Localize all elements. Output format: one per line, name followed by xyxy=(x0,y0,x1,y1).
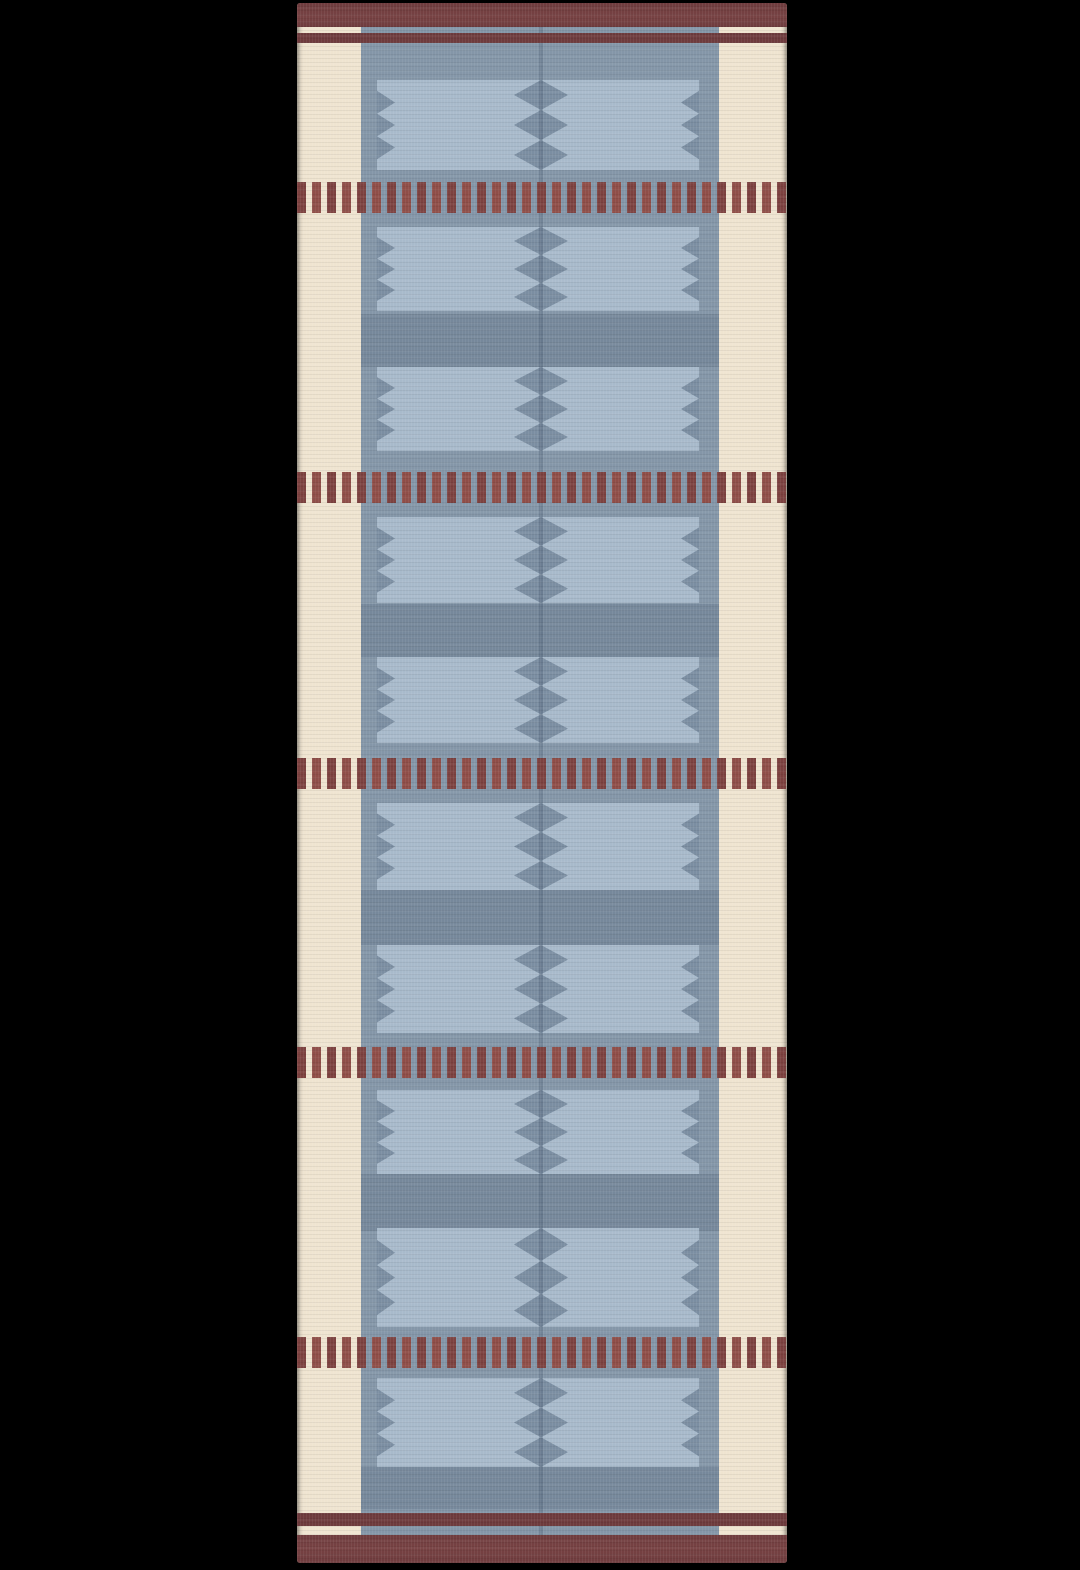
runner-rug xyxy=(297,3,787,1563)
dash-stripe-row xyxy=(297,472,787,503)
photo-background xyxy=(0,0,1080,1570)
top-thin-stripe xyxy=(297,33,787,43)
dash-stripe-row xyxy=(297,1047,787,1078)
dash-stripe-row xyxy=(297,182,787,213)
bottom-thin-stripe xyxy=(297,1513,787,1526)
bottom-end-band xyxy=(297,1535,787,1563)
dash-stripe-row xyxy=(297,1337,787,1368)
dash-stripe-row xyxy=(297,758,787,789)
top-end-band xyxy=(297,3,787,27)
